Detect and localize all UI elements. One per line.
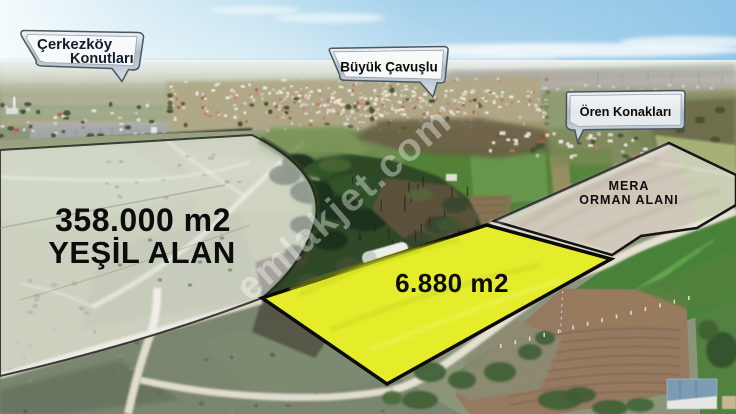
svg-text:358.000 m2: 358.000 m2 [55, 202, 231, 238]
svg-text:YEŞİL ALAN: YEŞİL ALAN [48, 235, 236, 270]
svg-text:Ören Konakları: Ören Konakları [580, 104, 672, 119]
svg-text:Konutları: Konutları [70, 51, 134, 67]
svg-text:MERA: MERA [609, 179, 650, 193]
svg-text:6.880 m2: 6.880 m2 [395, 268, 509, 298]
svg-text:ORMAN ALANI: ORMAN ALANI [579, 193, 678, 207]
svg-text:Büyük Çavuşlu: Büyük Çavuşlu [340, 60, 438, 75]
